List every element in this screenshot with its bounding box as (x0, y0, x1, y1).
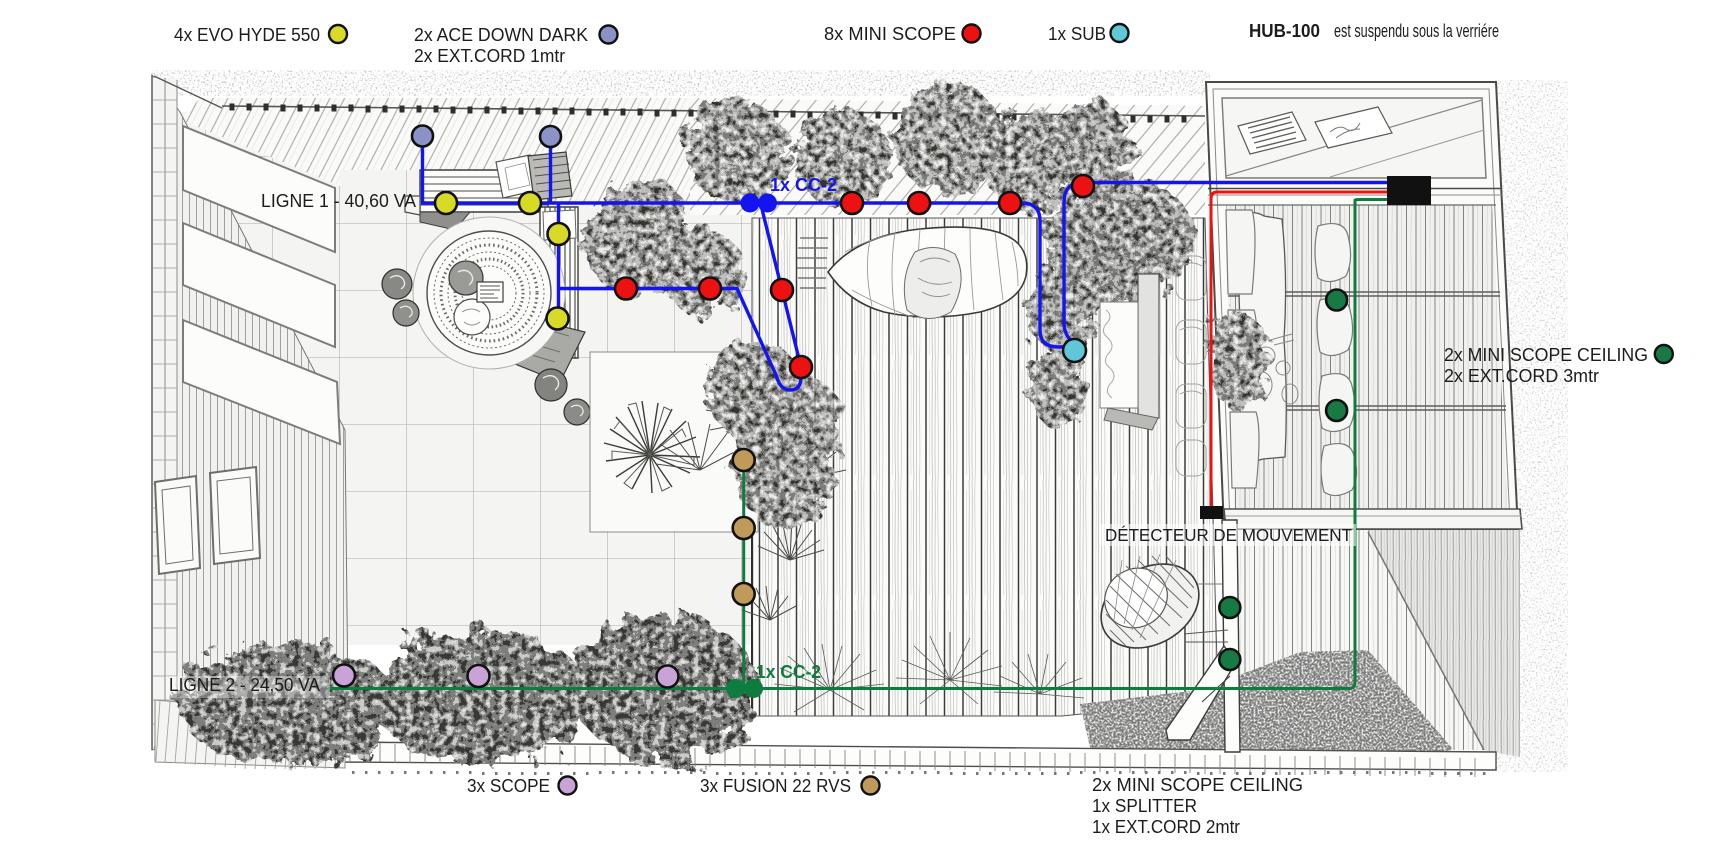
svg-text:2x EXT.CORD 3mtr: 2x EXT.CORD 3mtr (1444, 366, 1599, 386)
svg-text:LIGNE 2 - 24,50 VA: LIGNE 2 - 24,50 VA (169, 675, 320, 695)
svg-text:1x EXT.CORD 2mtr: 1x EXT.CORD 2mtr (1092, 817, 1240, 837)
svg-text:2x EXT.CORD 1mtr: 2x EXT.CORD 1mtr (414, 46, 565, 66)
svg-text:4x EVO HYDE 550: 4x EVO HYDE 550 (174, 25, 320, 45)
svg-text:2x MINI SCOPE CEILING: 2x MINI SCOPE CEILING (1444, 345, 1648, 365)
svg-text:8x MINI SCOPE: 8x MINI SCOPE (824, 24, 956, 44)
svg-text:LIGNE 1 - 40,60 VA: LIGNE 1 - 40,60 VA (261, 191, 416, 211)
svg-text:1x CC-2: 1x CC-2 (770, 175, 837, 195)
svg-text:3x SCOPE: 3x SCOPE (467, 776, 550, 796)
svg-text:DÉTECTEUR DE MOUVEMENT: DÉTECTEUR DE MOUVEMENT (1105, 525, 1352, 545)
svg-text:HUB-100: HUB-100 (1249, 21, 1320, 41)
svg-text:1x SPLITTER: 1x SPLITTER (1092, 796, 1197, 816)
svg-text:1x CC-2: 1x CC-2 (756, 662, 821, 682)
svg-text:1x SUB: 1x SUB (1048, 24, 1106, 44)
svg-text:2x MINI SCOPE CEILING: 2x MINI SCOPE CEILING (1092, 775, 1303, 795)
svg-text:3x FUSION 22 RVS: 3x FUSION 22 RVS (700, 776, 851, 796)
svg-text:est suspendu sous la verriére: est suspendu sous la verriére (1334, 21, 1499, 41)
svg-text:2x ACE DOWN DARK: 2x ACE DOWN DARK (414, 25, 588, 45)
